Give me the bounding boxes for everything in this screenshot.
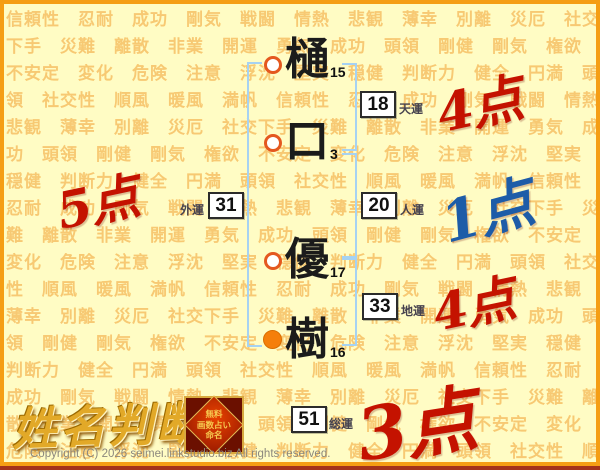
score-soun: 3点 <box>349 359 482 462</box>
fortune-value-soun: 51 <box>291 406 327 433</box>
fortune-value-tenun: 18 <box>360 91 396 118</box>
badge-text: 無料 画数占い 命名 <box>186 398 242 452</box>
char-marker-circle <box>264 56 282 74</box>
name-char-glyph: 樋 <box>285 35 329 84</box>
fortune-value-gaiun: 31 <box>208 192 244 219</box>
fortune-value-chiun: 33 <box>362 293 398 320</box>
fortune-label-soun: 総運 <box>329 415 353 432</box>
char-marker-circle <box>264 134 282 152</box>
name-char-glyph: 樹 <box>285 315 329 364</box>
bracket-jinun <box>342 153 357 258</box>
fortune-label-jinun: 人運 <box>400 201 424 218</box>
fortune-label-chiun: 地運 <box>401 302 425 319</box>
fortune-label-gaiun: 外運 <box>180 201 204 218</box>
badge-line: 命名 <box>205 431 222 441</box>
page-frame: 信頼性 忍耐 成功 剛気 戦闘 情熱 悲観 薄幸 別離 災厄 社交下手 災難 離… <box>0 0 600 470</box>
badge-line: 画数占い <box>197 420 231 430</box>
stroke-count: 16 <box>330 344 346 360</box>
name-char-glyph: 優 <box>285 235 329 284</box>
char-marker-circle <box>264 252 282 270</box>
stroke-count: 3 <box>330 146 338 162</box>
result-canvas: 信頼性 忍耐 成功 剛気 戦闘 情熱 悲観 薄幸 別離 災厄 社交下手 災難 離… <box>4 4 596 462</box>
name-char: 樋 15 <box>285 38 335 86</box>
name-char: 口 3 <box>285 120 335 168</box>
bottom-border-bar <box>0 466 600 470</box>
fortune-value-jinun: 20 <box>361 192 397 219</box>
copyright-text: Copyright (C) 2026 seimei.linkstudio.biz… <box>30 448 330 460</box>
name-char-glyph: 口 <box>285 117 329 166</box>
stroke-count: 15 <box>330 64 346 80</box>
name-char: 優 17 <box>285 238 335 286</box>
char-marker-circle-filled <box>263 330 282 349</box>
badge-line: 無料 <box>205 409 222 419</box>
fortune-label-tenun: 天運 <box>399 100 423 117</box>
free-naming-badge[interactable]: 無料 画数占い 命名 <box>184 396 244 454</box>
bracket-gaiun <box>247 62 262 347</box>
name-char: 樹 16 <box>285 318 335 366</box>
stroke-count: 17 <box>330 264 346 280</box>
